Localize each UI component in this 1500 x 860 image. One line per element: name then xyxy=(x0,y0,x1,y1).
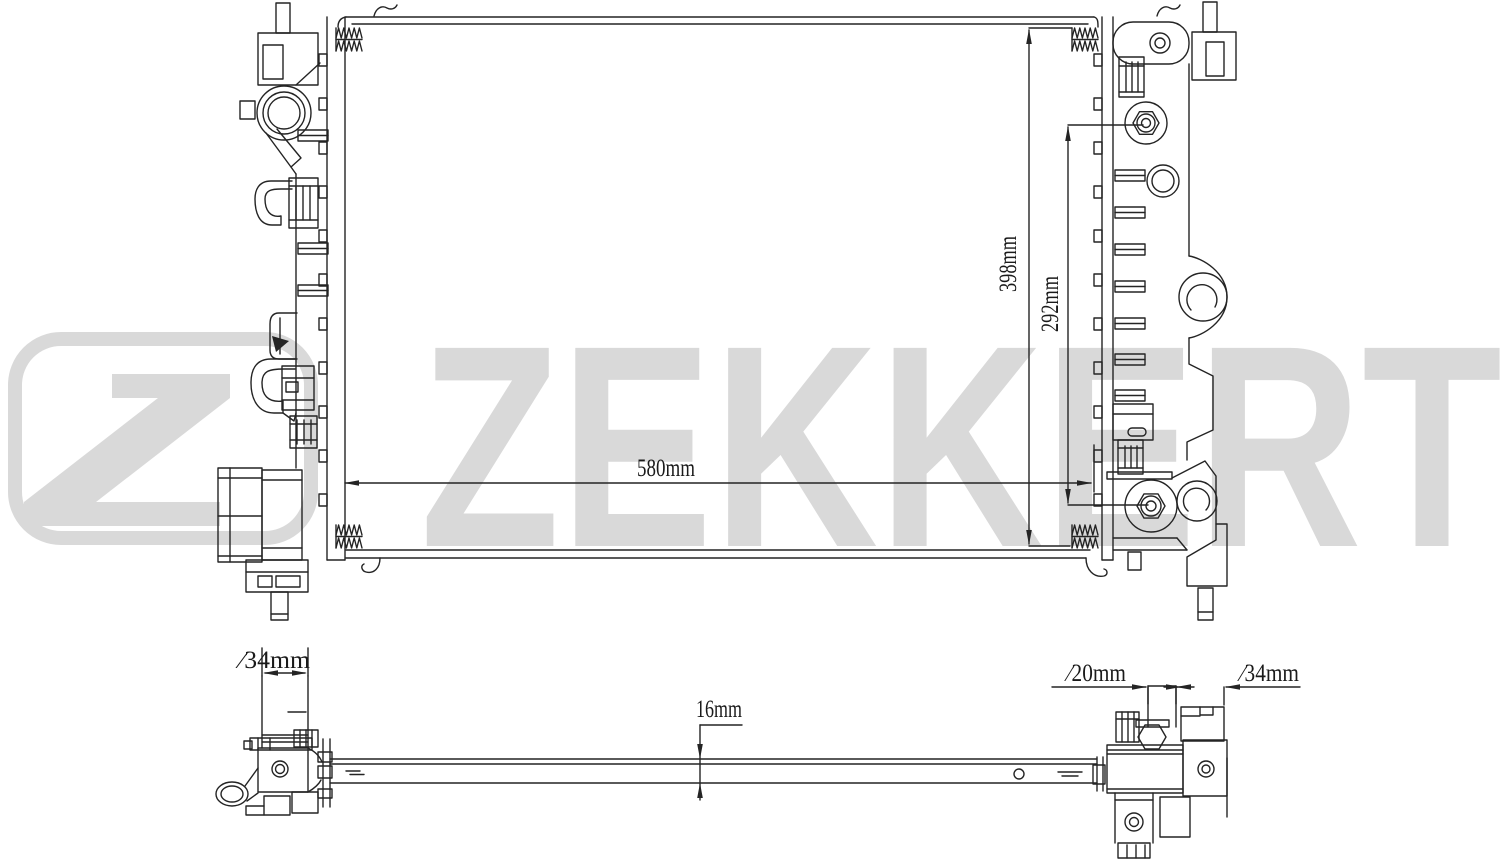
dim-core-thickness-label: 16mm xyxy=(696,696,742,723)
left-tank xyxy=(218,3,328,620)
brand-logo-z-glyph xyxy=(24,374,230,526)
upper-hook-clip xyxy=(255,181,292,225)
left-side-plate xyxy=(319,17,345,560)
bottom-view xyxy=(216,648,1300,858)
dim-port-spacing-label: 292mm xyxy=(1037,276,1064,332)
radiator-technical-drawing: ZEKKERT xyxy=(0,0,1500,860)
filler-neck xyxy=(257,86,311,140)
dimension-core-thickness xyxy=(700,725,742,800)
brand-watermark: ZEKKERT xyxy=(15,286,1500,608)
bottom-core-bar xyxy=(330,759,1097,783)
drain-plug xyxy=(1125,102,1167,144)
dim-outlet-diameter-label: ∕34mm xyxy=(1237,660,1300,687)
outlet-pipe xyxy=(1181,707,1224,741)
right-top-bracket xyxy=(1192,32,1236,80)
core-bar-hole xyxy=(1014,769,1024,779)
dim-overall-height-label: 398mm xyxy=(995,236,1022,292)
bottom-right-tank-end xyxy=(1052,686,1300,858)
lower-hook-clip xyxy=(251,359,295,413)
brand-watermark-text: ZEKKERT xyxy=(420,286,1500,608)
drawing-canvas: ZEKKERT xyxy=(0,0,1500,860)
top-mount-hole xyxy=(1150,33,1170,53)
brand-logo xyxy=(15,339,311,538)
left-bottom-mount-pin xyxy=(271,592,288,620)
dim-core-width-label: 580mm xyxy=(637,455,695,482)
left-top-mount-pin xyxy=(276,3,290,33)
left-lower-block xyxy=(218,468,262,562)
right-top-mount-pin xyxy=(1203,2,1217,32)
dim-small-pipe-diameter-label: ∕20mm xyxy=(1064,660,1127,687)
dim-inlet-diameter-label: ∕34mm xyxy=(235,647,311,674)
